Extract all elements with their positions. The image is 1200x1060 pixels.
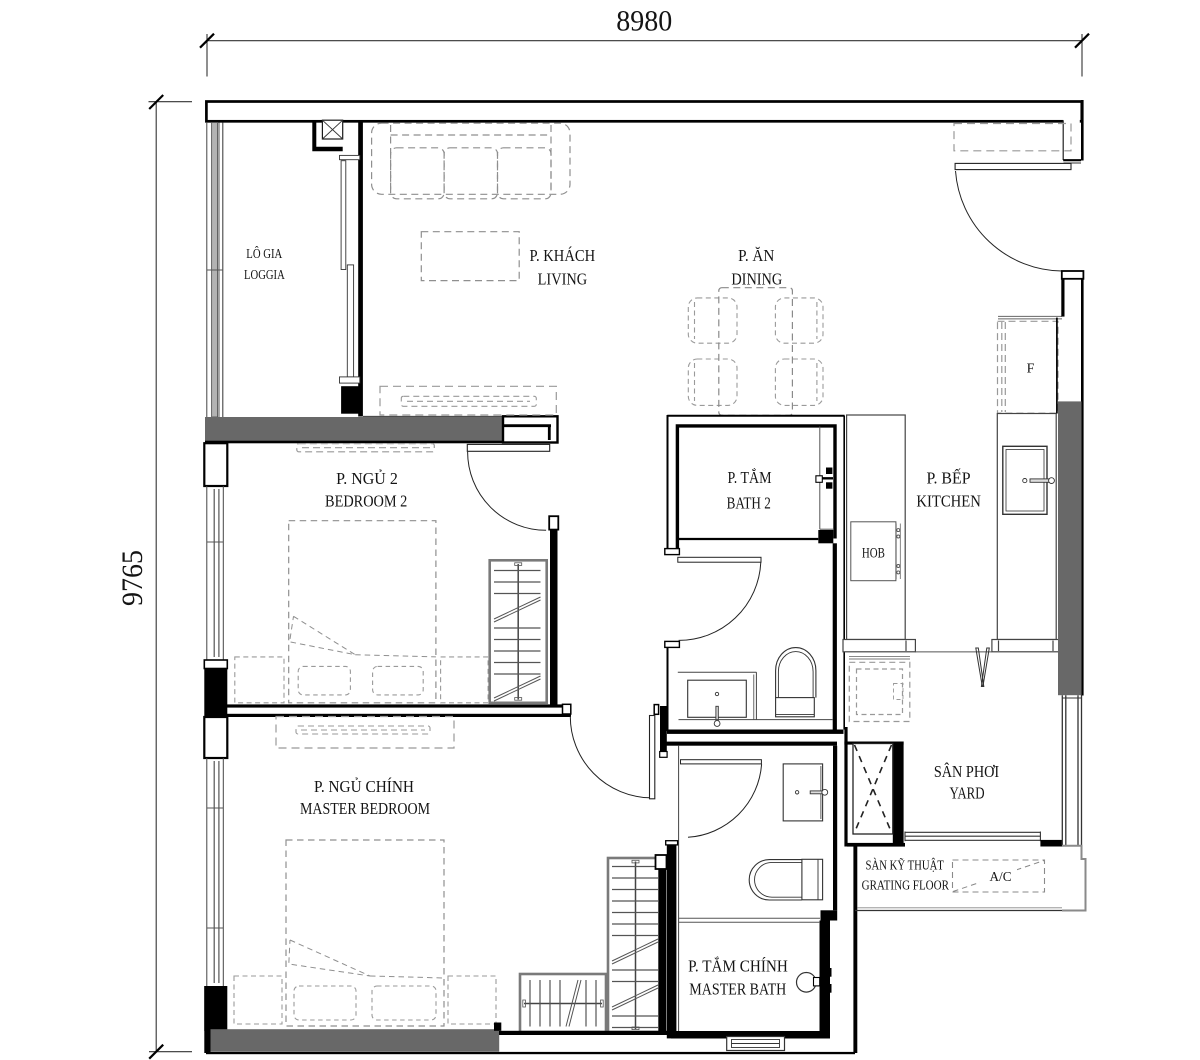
svg-text:8980: 8980 <box>616 5 672 38</box>
svg-text:P. ĂN: P. ĂN <box>738 246 774 265</box>
svg-text:GRATING FLOOR: GRATING FLOOR <box>862 879 950 894</box>
svg-text:LÔ GIA: LÔ GIA <box>246 245 283 262</box>
svg-text:KITCHEN: KITCHEN <box>916 492 980 511</box>
svg-text:HOB: HOB <box>862 546 885 562</box>
svg-text:P. TẮM CHÍNH: P. TẮM CHÍNH <box>688 957 788 976</box>
svg-text:P. NGỦ CHÍNH: P. NGỦ CHÍNH <box>314 777 414 796</box>
svg-text:LIVING: LIVING <box>538 269 588 288</box>
svg-text:A/C: A/C <box>990 870 1012 885</box>
svg-text:LOGGIA: LOGGIA <box>244 268 285 283</box>
svg-text:P. TẮM: P. TẮM <box>728 468 772 487</box>
svg-text:P. BẾP: P. BẾP <box>926 469 970 488</box>
svg-text:BEDROOM 2: BEDROOM 2 <box>325 492 407 511</box>
svg-text:DINING: DINING <box>731 269 782 288</box>
svg-text:F: F <box>1027 362 1035 377</box>
svg-text:BATH 2: BATH 2 <box>727 494 771 513</box>
svg-text:MASTER BEDROOM: MASTER BEDROOM <box>300 799 430 818</box>
svg-text:MASTER BATH: MASTER BATH <box>689 980 786 999</box>
svg-text:SÂN PHƠI: SÂN PHƠI <box>934 762 999 781</box>
svg-text:P. KHÁCH: P. KHÁCH <box>530 246 596 265</box>
svg-text:9765: 9765 <box>116 550 149 606</box>
svg-text:YARD: YARD <box>949 783 984 802</box>
svg-text:SÀN KỸ THUẬT: SÀN KỸ THUẬT <box>866 857 945 874</box>
svg-text:P. NGỦ 2: P. NGỦ 2 <box>336 469 398 488</box>
